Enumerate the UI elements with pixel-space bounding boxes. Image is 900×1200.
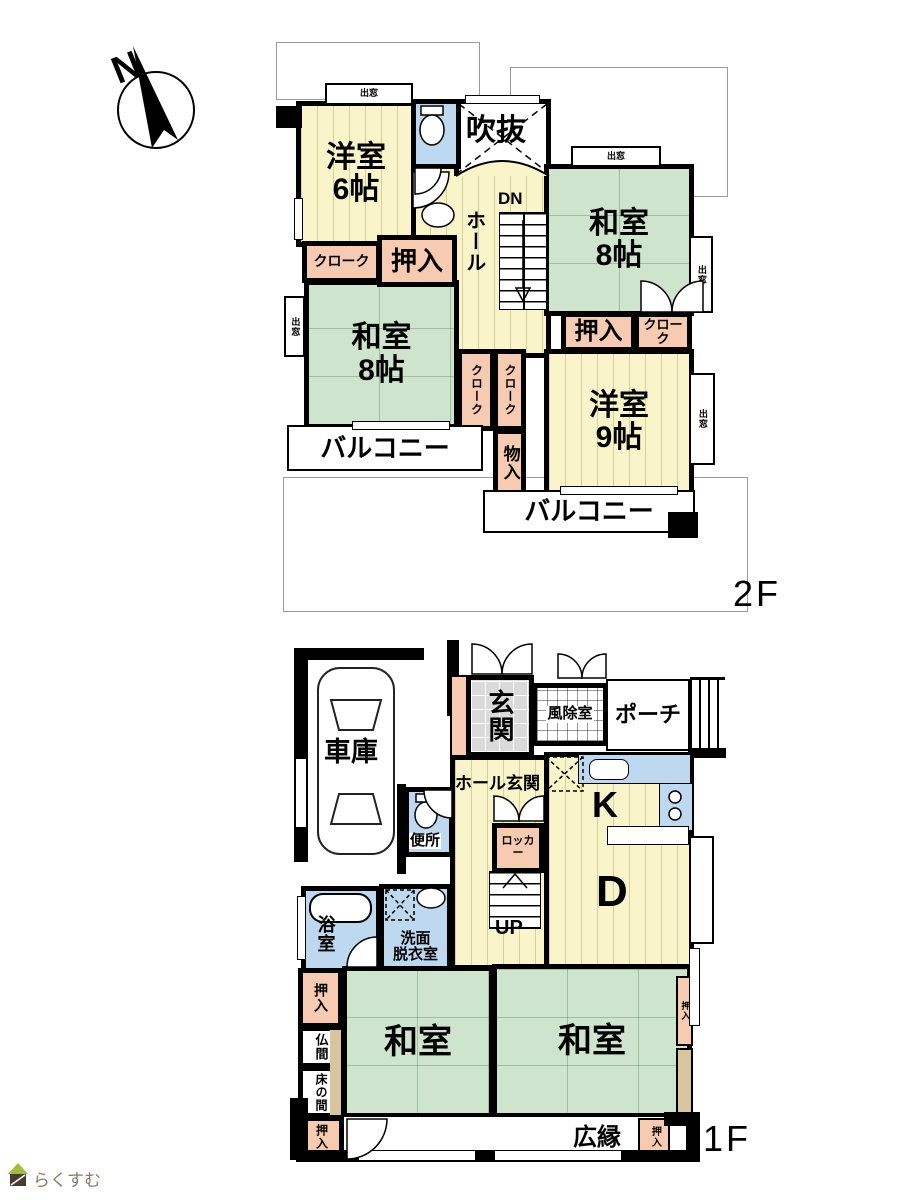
- closet-2f-oshiire-left: 押入: [377, 235, 457, 287]
- bay-window-label: 出窓: [697, 409, 707, 429]
- bay-window-japanese8-right: 出窓: [689, 236, 713, 313]
- room-1f-japanese-right: 和室: [492, 964, 692, 1118]
- room-2f-japanese8-top: 和室 8帖: [544, 164, 694, 316]
- room-label: ポーチ: [615, 703, 681, 727]
- closet-2f-monoiri: 物入: [493, 429, 526, 496]
- bay-window-japanese8l-left: 出窓: [284, 296, 305, 357]
- room-1f-windbreak: 風除室: [532, 683, 608, 746]
- room-1f-japanese-left: 和室: [342, 966, 494, 1118]
- bay-window-western9-right: 出窓: [689, 373, 715, 465]
- bay-window-label: 出窓: [290, 317, 300, 337]
- compass-icon: N: [106, 43, 194, 148]
- room-label: 和室: [352, 322, 412, 354]
- room-size: 9帖: [596, 422, 643, 454]
- room-label: 洋室: [589, 390, 649, 422]
- balcony-2f-left: バルコニー: [287, 425, 483, 471]
- closet-label: 押入: [313, 983, 328, 1013]
- entrance-hall-label: ホール玄関: [455, 775, 540, 793]
- bay-window-label: 出窓: [696, 265, 706, 285]
- wall-garage-top: [294, 648, 424, 660]
- room-label: 和室: [589, 208, 649, 240]
- room-label: 風除室: [546, 706, 593, 722]
- room-label: 広縁: [573, 1125, 621, 1151]
- closet-label: クローク: [470, 364, 483, 416]
- wall-corner-1f-left: [290, 1098, 308, 1160]
- closet-label: 押入: [391, 247, 443, 275]
- closet-label: クローク: [314, 254, 370, 269]
- bay-window-label: 出窓: [607, 152, 625, 162]
- window-2f-top: [465, 95, 540, 104]
- closet-label: クローク: [503, 364, 516, 416]
- floor-label-2f: 2F: [733, 575, 781, 614]
- closet-label: クローク: [639, 318, 687, 346]
- balcony-2f-bottom: バルコニー: [483, 490, 695, 533]
- stairs-dn-label: DN: [498, 190, 523, 208]
- room-2f-toilet: [409, 99, 461, 169]
- closet-label: ロッカー: [497, 836, 539, 860]
- balcony-label: バルコニー: [524, 497, 653, 525]
- room-label: 床の間: [314, 1073, 327, 1112]
- svg-text:N: N: [106, 43, 147, 92]
- closet-label: 物入: [500, 445, 518, 481]
- room-2f-japanese8-left: 和室 8帖: [304, 280, 459, 429]
- floorplan-canvas: 洋室 6帖 和室 8帖 和室 8帖 洋室 9帖 クローク 押入 押入 クローク …: [0, 0, 900, 1200]
- hall-label: ホール: [462, 210, 484, 273]
- bay-window-dining-right: [689, 836, 714, 944]
- door-genkan-left-leaf: [472, 644, 502, 674]
- stairs-up-label: UP: [495, 918, 523, 940]
- room-1f-genkan: 玄関: [466, 675, 534, 757]
- toilet-label: 便所: [409, 833, 441, 849]
- kitchen-sink: [589, 759, 629, 780]
- closet-2f-cloak-v1: クローク: [457, 349, 495, 431]
- closet-2f-cloak-right: クローク: [634, 312, 692, 352]
- closet-2f-oshiire-right: 押入: [561, 312, 636, 352]
- window-1f-bottom-2: [494, 1150, 622, 1161]
- dining-label: D: [596, 868, 628, 916]
- stairs-2f-down: [499, 212, 547, 310]
- wall-corner-2f-balcony: [668, 512, 698, 538]
- closet-label: 押入: [315, 1124, 328, 1150]
- room-2f-western9: 洋室 9帖: [544, 349, 694, 495]
- closet-1f-locker: ロッカー: [492, 823, 544, 873]
- room-label: 仏間: [313, 1033, 327, 1061]
- kitchen-label: K: [592, 786, 618, 825]
- wall-corner-2f: [276, 106, 302, 128]
- window-garage-left: [295, 758, 307, 828]
- room-size: 6帖: [333, 174, 380, 206]
- balcony-label: バルコニー: [320, 434, 449, 462]
- window-bath-left: [297, 896, 306, 960]
- window-1f-bottom-1: [358, 1150, 476, 1161]
- washroom-label-line2: 脱衣室: [393, 947, 438, 963]
- closet-2f-cloak-left: クローク: [302, 241, 381, 283]
- room-label: 和室: [558, 1023, 626, 1060]
- window-1f-right: [689, 948, 700, 1026]
- room-label: 和室: [384, 1024, 452, 1061]
- room-1f-washroom: 洗面 脱衣室: [379, 884, 452, 974]
- room-size: 8帖: [358, 355, 405, 387]
- dining-counter: [607, 826, 689, 845]
- floor-label-1f: 1F: [703, 1120, 751, 1159]
- kitchen-stove-counter: [659, 783, 693, 831]
- closet-2f-cloak-v2: クローク: [493, 349, 526, 431]
- brand-logo-text: らくすむ: [33, 1171, 101, 1190]
- tokonoma-wood-strip: [330, 1030, 341, 1115]
- closet-1f-oshiire-left: 押入: [298, 968, 343, 1028]
- room-label: 玄関: [486, 689, 514, 743]
- brand-logo: らくすむ: [8, 1163, 101, 1190]
- bay-window-label: 出窓: [360, 89, 378, 99]
- closet-label: 押入: [649, 1126, 660, 1148]
- door-windbreak-left-leaf: [558, 654, 582, 678]
- room-2f-western6: 洋室 6帖: [296, 101, 416, 247]
- tan-strip-right: [676, 1048, 693, 1114]
- closet-label: 押入: [680, 1001, 690, 1021]
- bay-window-western6-top: 出窓: [325, 83, 413, 105]
- door-windbreak-right-leaf: [582, 654, 606, 678]
- bay-window-japanese8-top: 出窓: [571, 146, 661, 167]
- garage-label: 車庫: [324, 738, 378, 767]
- room-label: 洋室: [326, 142, 386, 174]
- bath-label: 浴室: [315, 915, 334, 953]
- closet-label: 押入: [575, 319, 623, 345]
- room-size: 8帖: [596, 240, 643, 272]
- room-1f-porch: ポーチ: [606, 679, 690, 751]
- atrium-label: 吹抜: [466, 115, 526, 147]
- porch-railing: [690, 677, 725, 751]
- window-2f-west: [294, 198, 303, 240]
- sliding-door-balcony-bottom: [560, 486, 678, 495]
- washroom-label-line1: 洗面: [400, 931, 430, 947]
- sliding-door-balcony-left: [352, 421, 450, 430]
- wall-garage-left: [294, 648, 308, 862]
- door-genkan-right-leaf: [502, 644, 532, 674]
- wall-corner-1f-right-v: [686, 1112, 700, 1162]
